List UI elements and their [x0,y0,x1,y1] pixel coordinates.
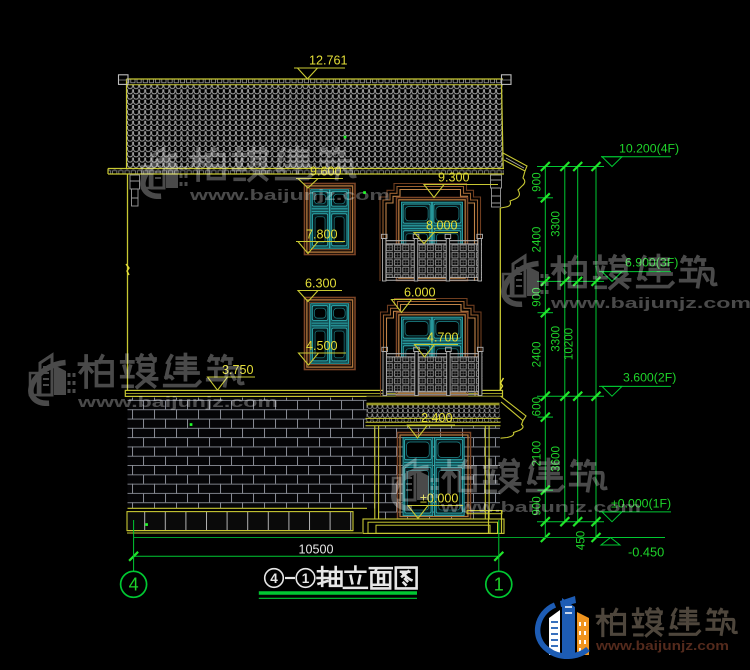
svg-text:-0.450: -0.450 [628,545,664,560]
svg-text:10200: 10200 [563,328,576,360]
svg-text:6.000: 6.000 [404,286,436,300]
svg-text:1: 1 [494,575,504,595]
svg-text:12.761: 12.761 [309,54,348,68]
svg-text:4: 4 [129,575,139,595]
svg-text:9.300: 9.300 [438,171,470,185]
svg-text:www.baijunjz.com: www.baijunjz.com [76,394,278,411]
svg-text:2400: 2400 [531,227,544,253]
svg-text:3300: 3300 [550,326,563,352]
svg-text:3300: 3300 [550,211,563,237]
svg-text:6.300: 6.300 [305,277,337,291]
svg-text:7.800: 7.800 [306,228,338,242]
svg-text:10.200(4F): 10.200(4F) [619,142,679,156]
svg-text:www.baijunjz.com: www.baijunjz.com [595,638,729,653]
svg-text:8.000: 8.000 [426,219,458,233]
svg-text:10500: 10500 [298,543,333,557]
svg-text:4: 4 [270,571,278,586]
svg-text:www.baijunjz.com: www.baijunjz.com [188,187,390,204]
svg-text:2.400: 2.400 [421,411,453,425]
svg-text:3.600(2F): 3.600(2F) [623,371,676,385]
svg-text:450: 450 [575,531,588,550]
svg-text:2400: 2400 [531,342,544,368]
svg-text:4.500: 4.500 [306,339,338,353]
svg-text:1: 1 [302,571,310,586]
svg-text:900: 900 [531,172,544,191]
svg-text:4.700: 4.700 [427,331,459,345]
svg-text:www.baijunjz.com: www.baijunjz.com [549,295,750,312]
svg-text:600: 600 [531,397,544,416]
svg-text:www.baijunjz.com: www.baijunjz.com [439,499,641,516]
